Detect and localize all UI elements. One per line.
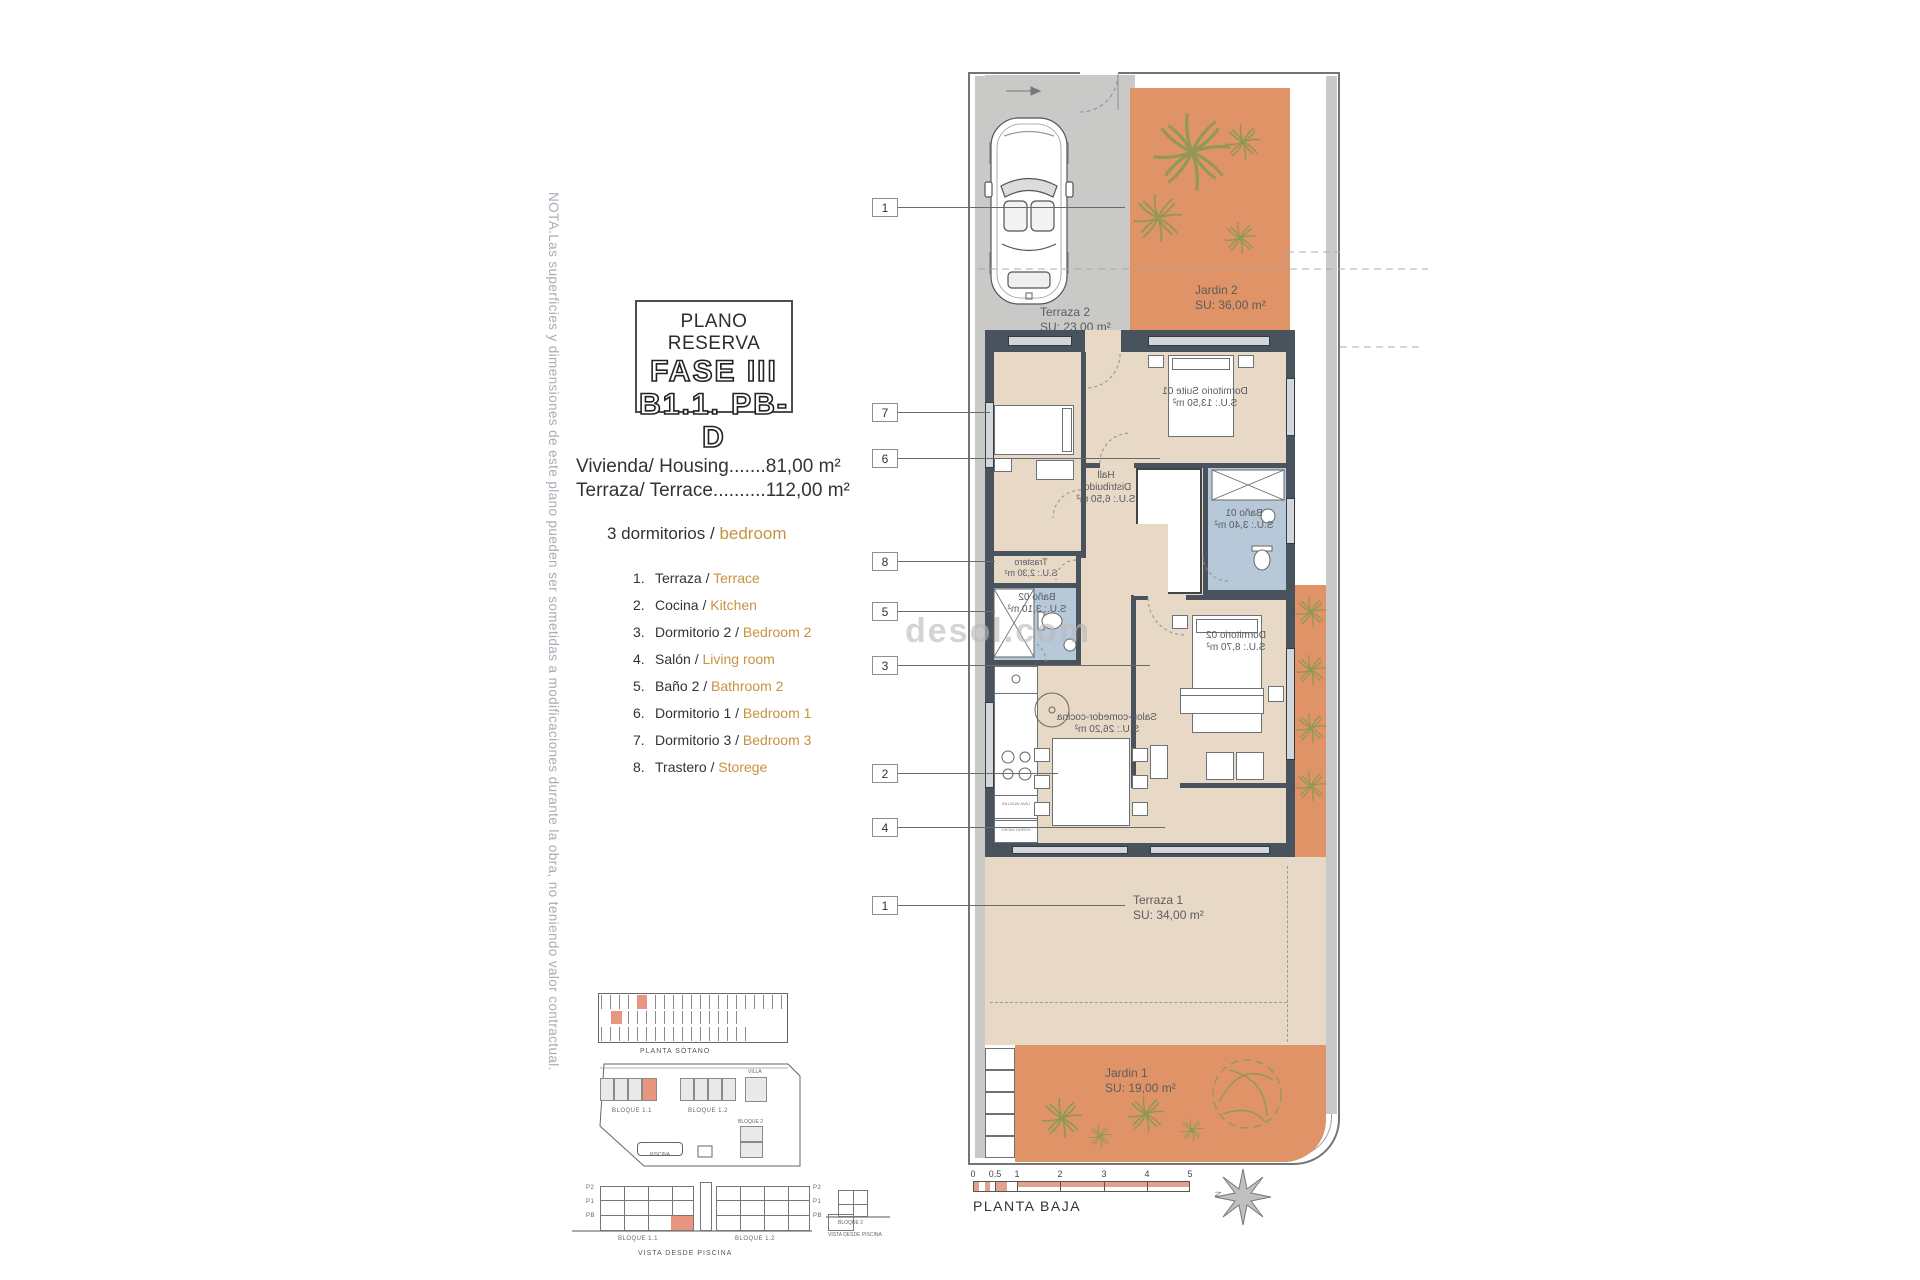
- site-unit: [740, 1126, 763, 1142]
- room-label-salon: Salon-comedor-cocina S.U.: 26,20 m²: [1042, 712, 1172, 736]
- leader-line: [898, 905, 1125, 906]
- room-label-bano1: Baño 01 S.U.: 3,40 m²: [1208, 508, 1280, 532]
- callout-3-dorm2: 3: [872, 656, 898, 675]
- hall-name: Hall: [1068, 470, 1144, 482]
- elevation-bloque12: [716, 1186, 810, 1231]
- entry-arrow-icon: [1006, 87, 1040, 95]
- callout-1-terraza: 1: [872, 198, 898, 217]
- floor-plan-sheet: NOTA.Las superficies y dimensiones de es…: [0, 0, 1920, 1280]
- bano1-area: S.U.: 3,40 m²: [1208, 520, 1280, 532]
- bano1-name: Baño 01: [1208, 508, 1280, 520]
- suite-area: S.U.: 13,50 m²: [1145, 398, 1265, 410]
- leader-line: [898, 827, 1165, 828]
- highlighted-parking: [611, 1011, 622, 1024]
- scale-tick-2: 2: [1057, 1169, 1062, 1179]
- leader-line: [898, 611, 995, 612]
- scale-tick-0: 0: [970, 1169, 975, 1179]
- site-unit: [722, 1078, 736, 1101]
- hall-name2: Distribuidor: [1068, 482, 1144, 494]
- parking-plan: [598, 993, 788, 1043]
- highlighted-parking: [637, 995, 647, 1009]
- parking-stalls: [601, 1027, 751, 1041]
- site-unit: [628, 1078, 642, 1101]
- parking-stalls: [619, 1011, 739, 1024]
- hall-area: S.U.: 6,50 m²: [1068, 494, 1144, 506]
- gate-door-arc: [1080, 74, 1118, 112]
- scale-bar-segment: [996, 1182, 1007, 1191]
- elevation-unit-highlighted: [671, 1216, 693, 1230]
- floor-label-pb-right: PB: [813, 1213, 822, 1219]
- callout-4-salon: 4: [872, 818, 898, 837]
- elevation-tower: [700, 1182, 712, 1231]
- leader-line: [898, 773, 1058, 774]
- trastero-name: Trastero: [996, 557, 1066, 568]
- elevation-bloque12-label: BLOQUE 1.2: [735, 1236, 775, 1242]
- parking-stalls: [601, 995, 783, 1009]
- floor-label-pb: PB: [586, 1213, 595, 1219]
- scale-tick-mark: [1189, 1181, 1190, 1192]
- site-unit: [680, 1078, 694, 1101]
- floor-label-p2: P2: [586, 1185, 594, 1191]
- vista-piscina-label-2: VISTA DESDE PISCINA: [828, 1232, 882, 1238]
- room-label-bano2: Baño 02 S.U.: 3,10 m²: [1002, 592, 1072, 616]
- leader-line: [898, 458, 1160, 459]
- vista-piscina-label: VISTA DESDE PISCINA: [638, 1250, 732, 1257]
- scale-tick-3: 3: [1101, 1169, 1106, 1179]
- site-unit: [600, 1078, 614, 1101]
- planta-baja-label: PLANTA BAJA: [973, 1198, 1081, 1214]
- site-unit: [708, 1078, 722, 1101]
- elevation-bloque11-label: BLOQUE 1.1: [618, 1236, 658, 1242]
- scale-tick-mark: [1104, 1181, 1105, 1192]
- site-villa-unit: [745, 1077, 767, 1102]
- scale-bar-subdivision: [974, 1182, 996, 1191]
- site-bloque11-label: BLOQUE 1.1: [612, 1108, 652, 1114]
- site-piscina-label: PISCINA: [650, 1152, 670, 1158]
- site-unit-highlighted: [642, 1078, 657, 1101]
- scale-tick-mark: [995, 1181, 996, 1192]
- room-label-hall: Hall Distribuidor S.U.: 6,50 m²: [1068, 470, 1144, 506]
- leader-line: [898, 412, 990, 413]
- site-unit: [614, 1078, 628, 1101]
- callout-8-trastero: 8: [872, 552, 898, 571]
- room-label-suite: Dormitorio Suite 01 S.U.: 13,50 m²: [1145, 386, 1265, 410]
- scale-bar: [973, 1181, 1190, 1192]
- site-unit: [740, 1142, 763, 1158]
- north-star-icon: [1215, 1169, 1271, 1225]
- elevation-bloque2: [838, 1190, 868, 1217]
- callout-1-terraza1: 1: [872, 896, 898, 915]
- floor-label-p2-right: P2: [813, 1185, 821, 1191]
- salon-name: Salon-comedor-cocina: [1042, 712, 1172, 724]
- scale-tick-mark: [1147, 1181, 1148, 1192]
- scale-tick-mark: [1017, 1181, 1018, 1192]
- north-label: N: [1214, 1191, 1223, 1197]
- scale-tick-4: 4: [1144, 1169, 1149, 1179]
- scale-tick-1: 1: [1014, 1169, 1019, 1179]
- suite-name: Dormitorio Suite 01: [1145, 386, 1265, 398]
- dorm2-area: S.U.: 8,70 m²: [1190, 642, 1282, 654]
- dorm2-name: Dormitorio 02: [1190, 630, 1282, 642]
- room-label-dorm2: Dormitorio 02 S.U.: 8,70 m²: [1190, 630, 1282, 654]
- site-bloque12-label: BLOQUE 1.2: [688, 1108, 728, 1114]
- car-icon: [985, 118, 1073, 304]
- leader-line: [898, 207, 1125, 208]
- parking-plan-label: PLANTA SÓTANO: [640, 1048, 710, 1055]
- callout-5-bano2: 5: [872, 602, 898, 621]
- trastero-area: S.U.: 2,30 m²: [996, 568, 1066, 579]
- room-label-trastero: Trastero S.U.: 2,30 m²: [996, 557, 1066, 579]
- watermark: desol.com: [905, 612, 1091, 651]
- scale-tick-05: 0.5: [989, 1169, 1002, 1179]
- elevation-bloque2-label: BLOQUE 2: [838, 1220, 863, 1226]
- scale-tick-5: 5: [1187, 1169, 1192, 1179]
- site-unit: [694, 1078, 708, 1101]
- leader-line: [898, 665, 1150, 666]
- bano2-name: Baño 02: [1002, 592, 1072, 604]
- site-bloque2-label: BLOQUE 2: [738, 1119, 763, 1125]
- callout-6-dorm1: 6: [872, 449, 898, 468]
- floor-label-p1-right: P1: [813, 1199, 821, 1205]
- leader-line: [898, 561, 995, 562]
- floor-label-p1: P1: [586, 1199, 594, 1205]
- site-villa-label: VILLA: [748, 1069, 762, 1075]
- callout-2-cocina: 2: [872, 764, 898, 783]
- bano2-area: S.U.: 3,10 m²: [1002, 604, 1072, 616]
- salon-area: S.U.: 26,20 m²: [1042, 724, 1172, 736]
- site-piscina: PISCINA: [637, 1142, 683, 1156]
- callout-7-dorm3: 7: [872, 403, 898, 422]
- scale-tick-mark: [1060, 1181, 1061, 1192]
- scale-tick-mark: [973, 1181, 974, 1192]
